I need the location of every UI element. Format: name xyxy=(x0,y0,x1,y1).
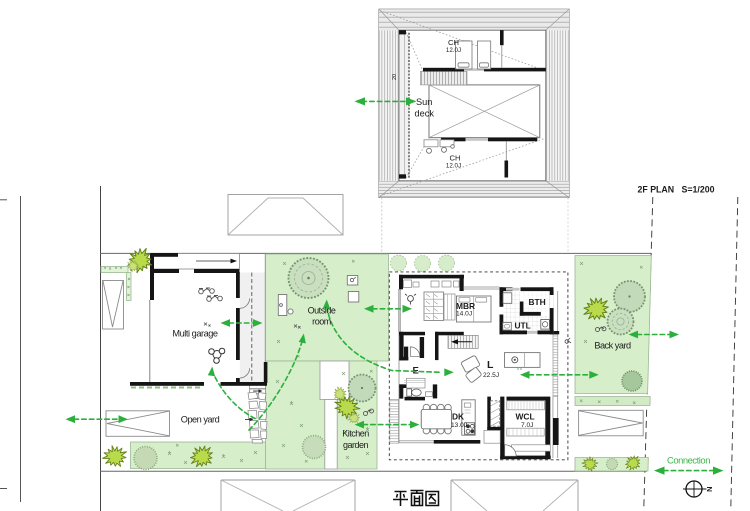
svg-text:14.0J: 14.0J xyxy=(456,311,472,318)
svg-text:20: 20 xyxy=(392,74,398,80)
svg-text:13.0J: 13.0J xyxy=(451,422,467,429)
svg-text:Outside: Outside xyxy=(308,306,336,316)
svg-text:Connection: Connection xyxy=(667,455,710,466)
svg-text:CH: CH xyxy=(450,154,461,163)
svg-text:Sun: Sun xyxy=(416,97,432,107)
svg-text:Multi garage: Multi garage xyxy=(172,329,217,339)
svg-text:Back yard: Back yard xyxy=(594,341,631,351)
svg-text:CH: CH xyxy=(448,38,459,47)
svg-text:N: N xyxy=(705,487,714,492)
svg-text:UTL: UTL xyxy=(515,320,531,330)
svg-text:Open yard: Open yard xyxy=(181,415,220,425)
svg-text:DK: DK xyxy=(452,412,464,422)
svg-text:2F PLAN S=1/200: 2F PLAN S=1/200 xyxy=(637,185,714,195)
svg-text:12.0J: 12.0J xyxy=(446,162,461,169)
svg-text:WCL: WCL xyxy=(516,412,535,422)
svg-text:MBR: MBR xyxy=(456,301,475,311)
svg-text:Kitchen: Kitchen xyxy=(342,429,369,439)
svg-text:garden: garden xyxy=(343,440,369,450)
svg-text:12.0J: 12.0J xyxy=(446,47,461,54)
svg-text:L: L xyxy=(487,359,494,371)
svg-text:7.0J: 7.0J xyxy=(521,422,533,429)
svg-text:room: room xyxy=(312,317,331,327)
svg-text:BTH: BTH xyxy=(529,297,546,307)
svg-text:deck: deck xyxy=(415,109,435,119)
svg-text:22.5J: 22.5J xyxy=(483,372,499,379)
